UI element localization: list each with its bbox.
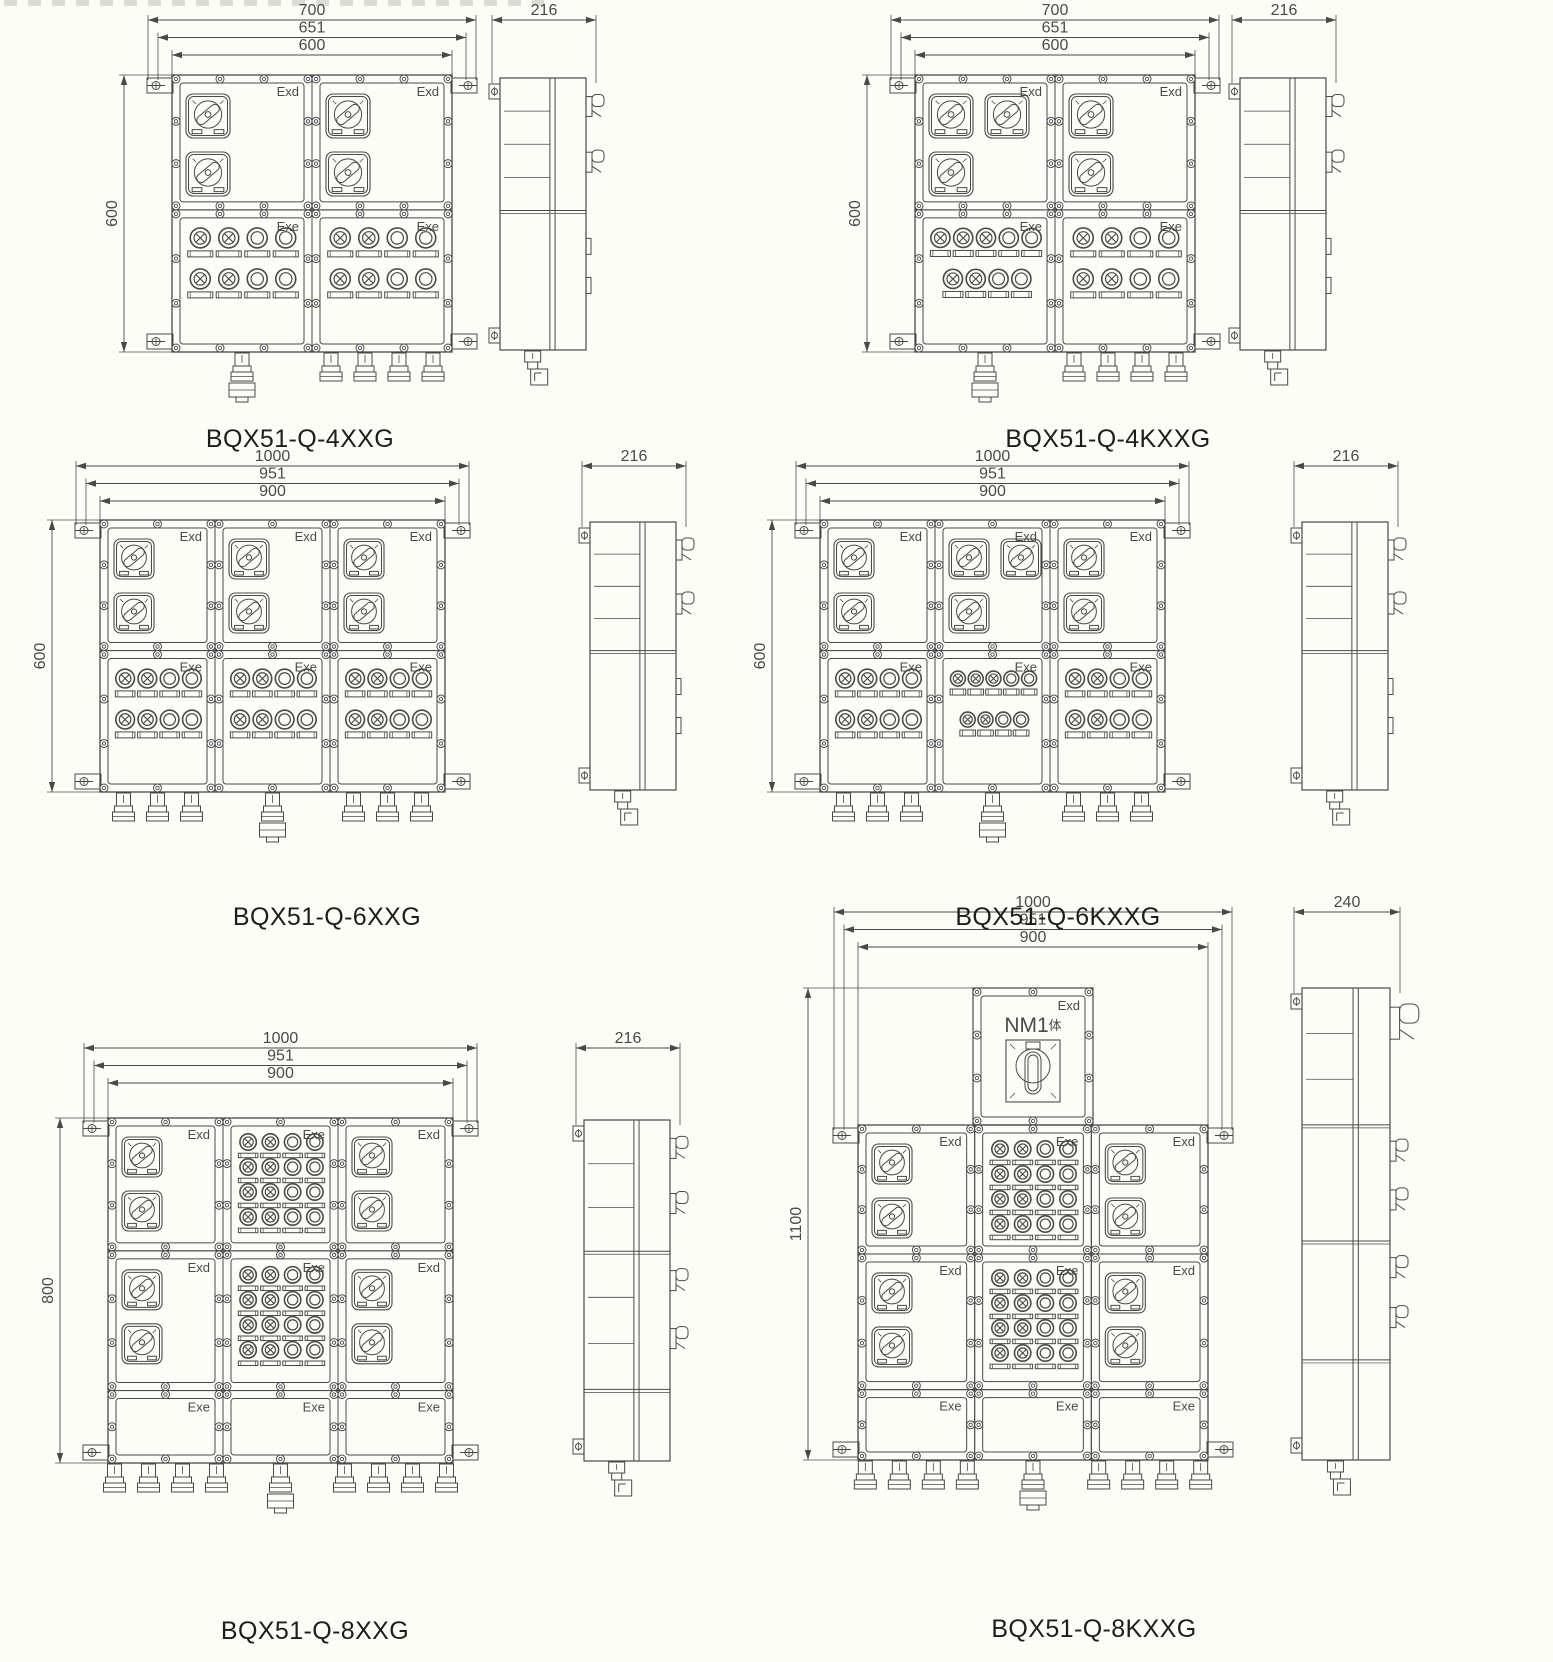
name-plate-icon [238,1336,258,1341]
switch-handle [130,1331,154,1353]
drawing-rect [878,1230,887,1234]
dimension-arrow [1212,926,1222,932]
drawing-rect [682,592,694,604]
drawing-rect [140,1477,158,1483]
name-plate-icon [305,1228,325,1233]
drawing-rect [1333,1479,1350,1495]
bolt-icon [277,1118,285,1126]
name-plate-icon [305,1336,325,1341]
bolt-icon [915,117,923,125]
pushbutton-icon [999,228,1018,247]
cable-gland-icon [1097,793,1119,821]
indicator-lamp-icon [240,1159,256,1175]
indicator-lamp-icon [858,710,877,729]
bolt-icon [277,1243,285,1251]
rotary-switch-icon [344,593,384,633]
bolt-icon [1055,202,1063,210]
bolt-icon [392,1251,400,1259]
drawing-circle [251,232,263,244]
switch-handle-side-icon [670,1269,688,1291]
drawing-rect [1394,538,1406,550]
dimension-value: 216 [615,1030,642,1047]
drawing-line [193,159,197,163]
bolt-icon [975,1452,983,1460]
exe-compartment: Exe [108,1391,223,1463]
bolt-icon [1085,1031,1093,1039]
rotary-switch-icon [229,593,269,633]
drawing-rect [1013,1160,1033,1165]
drawing-rect [878,1305,887,1309]
drawing-rect [128,1302,137,1306]
drawing-rect [1133,806,1151,812]
bolt-icon [1085,1117,1093,1125]
bolt-icon [1047,202,1055,210]
bolt-icon [915,202,923,210]
drawing-rect [261,1336,281,1341]
bolt-icon [400,344,408,352]
drawing-circle [1024,674,1033,683]
name-plate-icon [1035,1210,1055,1215]
drawing-rect [1332,95,1344,107]
drawing-rect [1156,251,1181,257]
dimension-value: 600 [299,37,326,54]
bolt-icon [215,520,223,528]
indicator-lamp-icon [262,1292,278,1308]
dimension-value: 800 [40,1277,57,1304]
bolt-icon [338,1118,346,1126]
drawing-rect [283,1361,303,1366]
drawing-circle [1037,1320,1053,1336]
drawing-rect [1026,1042,1040,1049]
dimension-arrow [459,463,469,469]
dimension-arrow [492,17,502,23]
pushbutton-icon [275,669,294,688]
bolt-icon [312,255,320,263]
bolt-icon [444,344,452,352]
bolt-icon [1047,255,1055,263]
bolt-icon [215,1201,223,1209]
compartment-type-label: Exd [410,529,432,544]
pushbutton-icon [284,1342,300,1358]
drawing-rect [999,250,1019,256]
drawing-rect [878,1359,887,1363]
indicator-lamp-icon [346,710,365,729]
indicator-lamp-icon [1073,269,1093,289]
bolt-icon [1099,344,1107,352]
drawing-rect [208,1477,226,1483]
pushbutton-icon [307,1159,323,1175]
bolt-icon [1047,210,1055,218]
dimension-arrow [586,17,596,23]
drawing-rect [305,1153,325,1158]
bolt-icon [223,1201,231,1209]
bolt-icon [207,602,215,610]
enclosure-outline [500,78,586,350]
drawing-rect [356,251,381,257]
drawing-rect [860,571,869,575]
bolt-icon [338,1295,346,1303]
bolt-icon [445,1383,453,1391]
pushbutton-icon [1022,671,1037,686]
bolt-icon [437,520,445,528]
bolt-icon [1091,1254,1099,1262]
bolt-icon [172,299,180,307]
name-plate-icon [1128,251,1153,257]
drawing-circle [1063,1323,1073,1333]
drawing-rect [1097,188,1107,192]
name-plate-icon [995,730,1011,736]
indicator-lamp-icon [240,1342,256,1358]
pushbutton-icon [160,669,179,688]
drawing-rect [236,397,248,402]
drawing-circle [1015,273,1027,285]
rotary-switch-icon [929,152,973,196]
bolt-icon [1091,1452,1099,1460]
drawing-rect [935,188,945,192]
drawing-circle [413,710,432,729]
drawing-line [145,599,148,602]
indicator-lamp-icon [219,269,239,289]
drawing-line [128,1143,131,1146]
bolt-icon [935,651,943,659]
dimension-vertical: 600 [752,520,820,792]
bolt-icon [1143,75,1151,83]
drawing-rect [283,1311,303,1316]
bolt-icon [108,1251,116,1259]
drawing-rect [670,1329,676,1349]
drawing-rect [1035,1314,1055,1319]
drawing-rect [360,1277,384,1299]
drawing-rect [840,571,849,575]
bolt-icon [356,210,364,218]
drawing-circle [906,714,918,726]
pushbutton-icon [284,1134,300,1150]
drawing-rect [122,601,146,623]
bolt-icon [215,1423,223,1431]
bolt-icon [207,643,215,651]
drawing-rect [261,1286,281,1291]
drawing-rect [130,1277,154,1299]
bolt-icon [1099,202,1107,210]
bolt-icon [1085,1074,1093,1082]
mounting-bracket-icon [1229,84,1240,99]
drawing-circle [1040,1194,1050,1204]
rotary-switch-icon [872,1327,912,1367]
bolt-icon [172,255,180,263]
drawing-circle [288,1295,298,1305]
indicator-lamp-icon [330,269,350,289]
indicator-lamp-icon [1014,1141,1030,1157]
name-plate-icon [990,1235,1010,1240]
indicator-lamp-icon [992,1141,1008,1157]
pushbutton-icon [1130,269,1150,289]
bolt-icon [1050,695,1058,703]
drawing-rect [1111,1305,1120,1309]
compartment-type-label: Exd [188,1260,210,1275]
bolt-icon [312,160,320,168]
name-plate-icon [1132,732,1152,738]
drawing-rect [1124,1474,1142,1480]
indicator-lamp-icon [950,671,965,686]
bolt-icon [820,784,828,792]
bolt-icon [330,1243,338,1251]
dimension-value: 1100 [788,1207,805,1242]
figure-bqx51-q-4xxg: 700651600600ExdExdExeExe216 [104,2,604,402]
indicator-lamp-icon [992,1270,1008,1286]
drawing-rect [856,1474,874,1480]
drawing-line [1111,1150,1114,1153]
drawing-rect [890,1474,908,1480]
name-plate-icon [1058,1364,1078,1369]
mounting-bracket-icon [573,1439,584,1454]
drawing-rect [682,538,694,550]
bolt-icon [959,202,967,210]
rotary-switch-icon [1105,1327,1145,1367]
bolt-icon [975,1246,983,1254]
rotary-switch-icon [352,1270,392,1310]
drawing-rect [322,366,340,372]
cover-tab-icon [1326,238,1331,254]
pushbutton-icon [284,1184,300,1200]
bolt-icon [975,1297,983,1305]
drawing-line [955,599,958,602]
bolt-icon [392,1118,400,1126]
drawing-rect [297,732,317,738]
drawing-rect [130,1331,154,1353]
drain-valve-icon [268,1494,294,1513]
bolt-icon [445,1243,453,1251]
bolt-icon [215,1391,223,1399]
bolt-icon [1091,1125,1099,1133]
switch-handle [1113,1281,1137,1303]
drawing-circle [1040,1273,1050,1283]
drawing-circle [999,715,1008,724]
bolt-icon [973,988,981,996]
drawing-rect [261,1178,281,1183]
drawing-rect [1072,601,1096,623]
drawing-rect [192,130,202,134]
drawing-circle [284,1317,300,1333]
bolt-icon [215,561,223,569]
drawing-rect [238,1311,258,1316]
drawing-rect [586,152,592,172]
drawing-rect [378,1356,387,1360]
drawing-rect [976,250,996,256]
drawing-rect [1013,1185,1033,1190]
bolt-icon [260,210,268,218]
drawing-rect [350,625,359,629]
dimension-arrow [864,342,870,352]
bolt-icon [912,1452,920,1460]
drawing-circle [307,1342,323,1358]
dimension-arrow [805,1450,811,1460]
compartment-type-label: Exd [939,1134,961,1149]
name-plate-icon [1013,1289,1033,1294]
drawing-rect [1111,1359,1120,1363]
pushbutton-icon [1060,1295,1076,1311]
bolt-icon [215,740,223,748]
name-plate-icon [238,1311,258,1316]
drawing-line [1010,1044,1015,1049]
name-plate-icon [275,691,295,697]
drawing-rect [1065,691,1085,697]
drawing-circle [1133,710,1152,729]
bolt-icon [330,1118,338,1126]
drawing-rect [1035,1185,1055,1190]
dimension-arrow [456,34,466,40]
drawing-line [383,1197,386,1200]
drawing-circle [1063,1169,1073,1179]
bolt-icon [108,1243,116,1251]
pushbutton-icon [1060,1216,1076,1232]
dimension-arrow [467,1045,477,1051]
bolt-icon [223,1160,231,1168]
dimension-value: 216 [621,448,648,465]
drawing-rect [989,291,1009,297]
dimension-horizontal: 900 [108,1065,453,1123]
drawing-rect [332,188,342,192]
drawing-circle [1063,1298,1073,1308]
indicator-lamp-icon [992,1345,1008,1361]
name-plate-icon [989,291,1009,297]
name-plate-icon [253,732,273,738]
cable-gland-icon [888,1461,910,1489]
pushbutton-icon [1060,1191,1076,1207]
bolt-icon [1157,602,1165,610]
drawing-rect [370,1477,388,1483]
indicator-lamp-icon [262,1184,278,1200]
drawing-rect [955,625,964,629]
bolt-icon [384,651,392,659]
drawing-circle [1040,1298,1050,1308]
drawing-circle [284,1184,300,1200]
drain-valve-icon [260,823,286,842]
drawing-line [1070,545,1073,548]
drawing-rect [902,732,922,738]
figure-bqx51-q-8xxg: 1000951900800ExdExeExdExdExeExdExeExeExe… [40,1030,688,1513]
mounting-bracket-icon [1229,328,1240,343]
dimension-vertical: 800 [40,1118,108,1463]
drawing-circle [298,710,317,729]
rotary-switch-icon [122,1137,162,1177]
indicator-lamp-icon [240,1209,256,1225]
drawing-rect [953,250,973,256]
switch-handle [1078,103,1104,127]
bolt-icon [820,651,828,659]
drawing-line [193,101,197,105]
drawing-rect [174,1477,192,1483]
drawing-rect [115,691,135,697]
drawing-rect [1099,1262,1200,1382]
drawing-rect [1035,1210,1055,1215]
drawing-rect [297,691,317,697]
bolt-icon [1104,651,1112,659]
drawing-line [865,545,868,548]
drawing-rect [128,1169,137,1173]
mounting-bracket-icon [451,78,477,93]
name-plate-icon [261,1153,281,1158]
bolt-icon [215,1118,223,1126]
bolt-icon [162,1455,170,1463]
bolt-icon [356,75,364,83]
bolt-icon [338,1391,346,1399]
drawing-rect [1075,188,1085,192]
bolt-icon [1157,784,1165,792]
bolt-icon [1146,1382,1154,1390]
name-plate-icon [413,292,438,298]
dimension-value: 951 [267,1048,294,1065]
drawing-line [592,166,601,172]
bolt-icon [1200,1165,1208,1173]
bolt-icon [215,784,223,792]
bolt-icon [162,1391,170,1399]
bolt-icon [820,602,828,610]
drawing-rect [835,691,855,697]
drawing-rect [385,251,410,257]
drawing-rect [1088,732,1108,738]
drawing-rect [214,130,224,134]
switch-handle [352,547,376,569]
drawing-line [676,1152,685,1158]
pushbutton-icon [1037,1320,1053,1336]
drawing-circle [1134,232,1146,244]
indicator-lamp-icon [262,1317,278,1333]
drawing-circle [1037,1345,1053,1361]
drawing-rect [1111,1176,1120,1180]
bolt-icon [100,520,108,528]
drawing-rect [160,691,180,697]
pushbutton-icon [307,1317,323,1333]
exd-compartment: Exd [338,1251,453,1391]
indicator-lamp-icon [836,669,855,688]
drawing-rect [1396,1256,1408,1268]
bolt-icon [1083,1452,1091,1460]
drawing-rect [1035,1235,1055,1240]
switch-handle [130,1199,154,1221]
exd-compartment: Exd [338,1118,453,1251]
drawing-rect [1071,292,1096,298]
drawing-rect [898,1359,907,1363]
drawing-rect [188,292,213,298]
switch-handle-side-icon [1326,150,1344,172]
bolt-icon [223,1251,231,1259]
breaker-model-label: NM1体 [1004,1014,1061,1037]
drawing-rect [618,802,628,809]
drawing-line [220,101,224,105]
switch-handle [1072,547,1096,569]
exd-compartment: Exd [108,1251,223,1391]
bolt-icon [1146,1390,1154,1398]
drawing-circle [394,714,406,726]
drawing-line [1070,599,1073,602]
name-plate-icon [115,732,135,738]
drawing-circle [275,669,294,688]
bolt-icon [207,520,215,528]
name-plate-icon [283,1203,303,1208]
name-plate-icon [1088,732,1108,738]
side-view [579,522,694,825]
bolt-icon [215,1339,223,1347]
drawing-line [128,1276,131,1279]
name-plate-icon [238,1153,258,1158]
indicator-lamp-icon [992,1191,1008,1207]
front-view: ExdExdExeExe [890,75,1220,402]
bolt-icon [858,1297,866,1305]
drawing-line [1136,1204,1139,1207]
bolt-icon [330,1339,338,1347]
indicator-lamp-icon [954,228,973,247]
bolt-icon [330,1455,338,1463]
